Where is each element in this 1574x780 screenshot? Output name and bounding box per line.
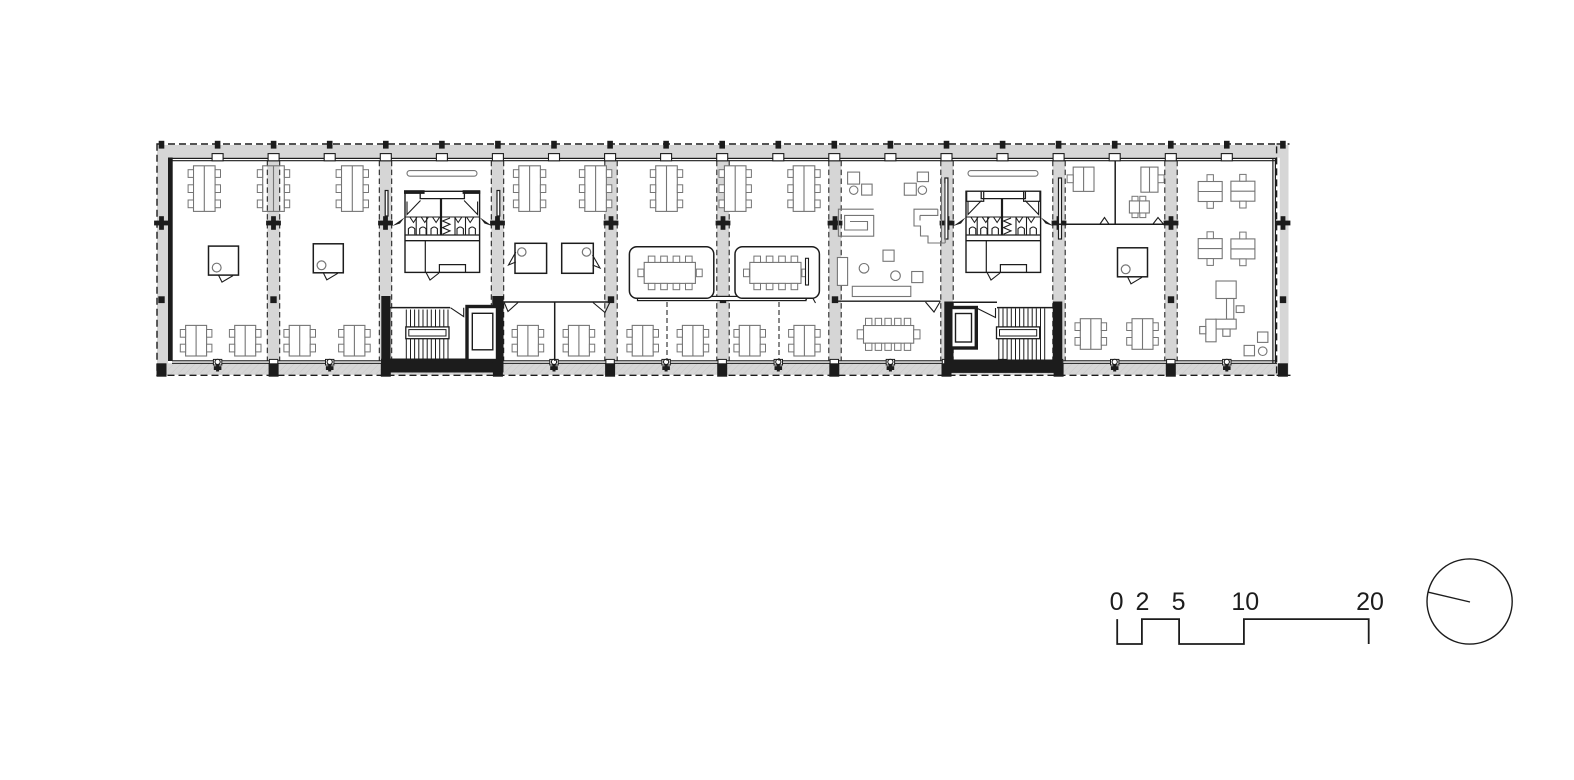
svg-text:10: 10 xyxy=(1231,588,1259,616)
svg-text:2: 2 xyxy=(1135,588,1149,616)
svg-text:0: 0 xyxy=(1110,588,1124,616)
svg-text:20: 20 xyxy=(1356,588,1384,616)
svg-text:5: 5 xyxy=(1172,588,1186,616)
